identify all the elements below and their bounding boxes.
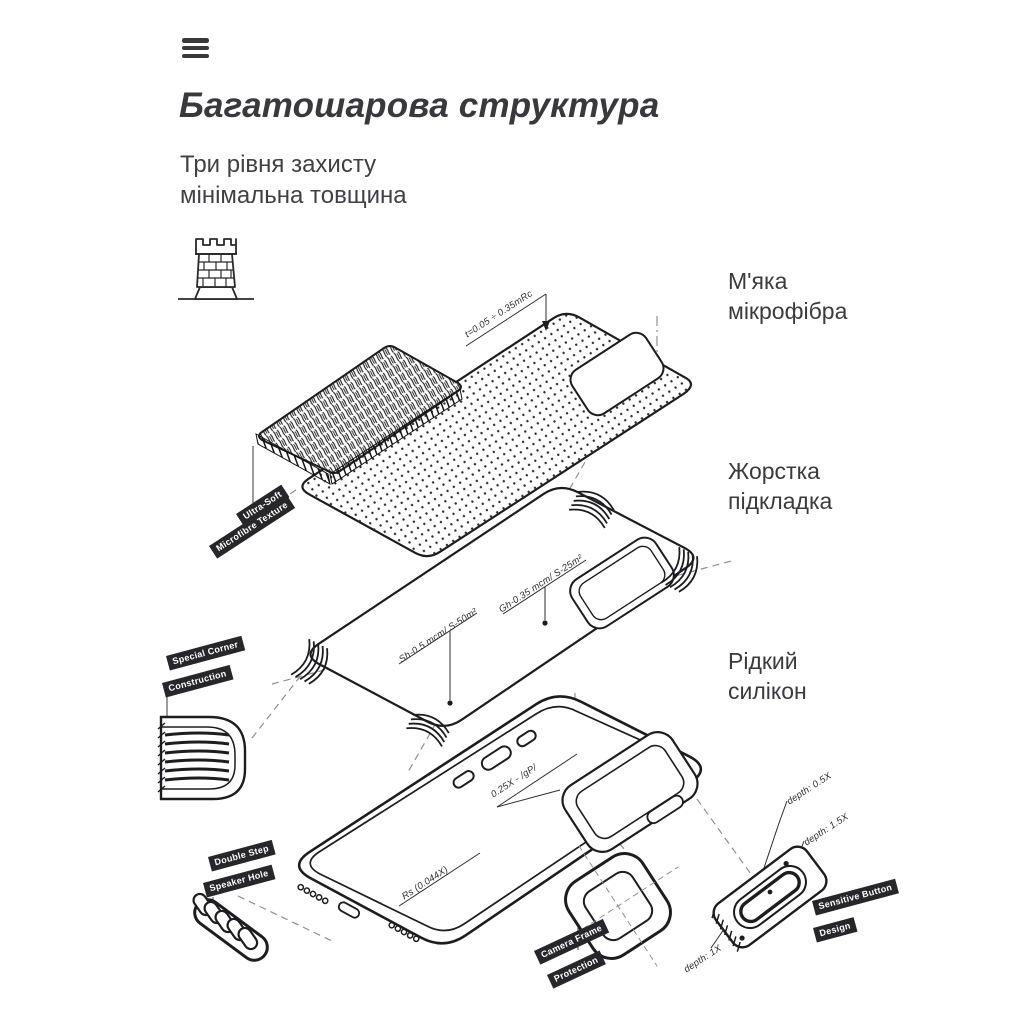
page-title: Багатошарова структура (179, 86, 659, 126)
label-line: мікрофібра (728, 296, 847, 326)
page-subtitle: Три рівня захисту мінімальна товщина (180, 149, 407, 211)
menu-icon[interactable] (182, 38, 209, 61)
subtitle-line: мінімальна товщина (180, 180, 407, 211)
tower-icon (173, 226, 259, 306)
menu-bar (182, 38, 209, 43)
label-hard-liner: Жорстка підкладка (728, 456, 832, 516)
menu-bar (182, 46, 209, 51)
corner-detail (158, 717, 245, 799)
subtitle-line: Три рівня захисту (180, 149, 407, 180)
button-detail (707, 842, 831, 953)
label-line: Жорстка (728, 456, 832, 486)
label-line: Рідкий (728, 646, 807, 676)
label-soft-microfiber: М'яка мікрофібра (728, 266, 847, 326)
label-line: М'яка (728, 266, 847, 296)
exploded-case-illustration (0, 0, 1024, 1024)
menu-bar (182, 54, 209, 59)
hard-liner-layer (291, 486, 703, 746)
label-liquid-silicone: Рідкий силікон (728, 646, 807, 706)
speaker-detail (190, 891, 273, 965)
label-line: підкладка (728, 486, 832, 516)
label-line: силікон (728, 676, 807, 706)
